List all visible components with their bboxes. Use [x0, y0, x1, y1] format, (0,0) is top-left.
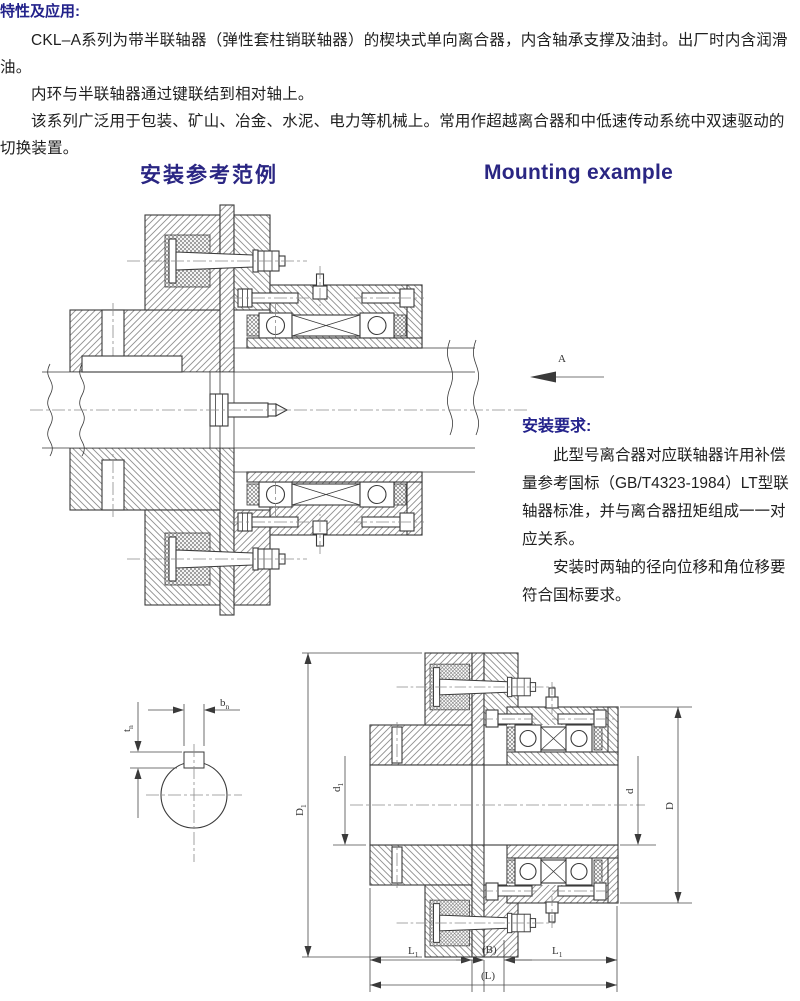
svg-text:D: D: [664, 802, 676, 810]
shaft-key: [82, 356, 182, 372]
dim-label-key-depth: tn: [121, 725, 135, 732]
intro-heading: 特性及应用:: [0, 1, 798, 23]
svg-text:d1: d1: [331, 783, 345, 793]
svg-text:L1: L1: [408, 945, 419, 959]
dim-bore-right: d: [620, 756, 656, 845]
figure-dimension-drawing: bn tn: [100, 640, 750, 1001]
view-label: A: [558, 353, 566, 365]
keyway-section-detail: bn tn: [121, 697, 242, 862]
install-requirements: 安装要求: 此型号离合器对应联轴器许用补偿量参考国标（GB/T4323-1984…: [522, 415, 790, 610]
install-requirements-paragraph: 安装时两轴的径向位移和角位移要符合国标要求。: [522, 554, 790, 610]
section-title-zh: 安装参考范例: [140, 159, 278, 189]
svg-text:(B): (B): [482, 944, 497, 956]
dim-bore-left: d1: [331, 756, 366, 845]
install-requirements-heading: 安装要求:: [522, 415, 790, 439]
install-requirements-paragraph: 此型号离合器对应联轴器许用补偿量参考国标（GB/T4323-1984）LT型联轴…: [522, 442, 790, 554]
dim-label-key-width: bn: [220, 697, 230, 711]
svg-text:L1: L1: [552, 945, 563, 959]
svg-text:(L): (L): [481, 970, 495, 982]
svg-text:D1: D1: [294, 804, 308, 816]
intro-paragraph: CKL–A系列为带半联轴器（弹性套柱销联轴器）的楔块式单向离合器，内含轴承支撑及…: [0, 27, 798, 81]
dim-length-right: L1: [504, 945, 617, 964]
view-arrow-a: A: [530, 353, 604, 383]
svg-text:d: d: [624, 788, 636, 794]
dim-length-total: (L): [370, 970, 617, 989]
intro-section: 特性及应用: CKL–A系列为带半联轴器（弹性套柱销联轴器）的楔块式单向离合器，…: [0, 1, 798, 162]
coupling-upper-half-dimensioned: [370, 653, 618, 768]
section-title-en: Mounting example: [484, 161, 673, 185]
intro-paragraph: 内环与半联轴器通过键联结到相对轴上。: [0, 81, 798, 108]
coupling-upper-half: [70, 205, 475, 372]
intro-paragraph: 该系列广泛用于包装、矿山、冶金、水泥、电力等机械上。常用作超越离合器和中低速传动…: [0, 108, 798, 162]
